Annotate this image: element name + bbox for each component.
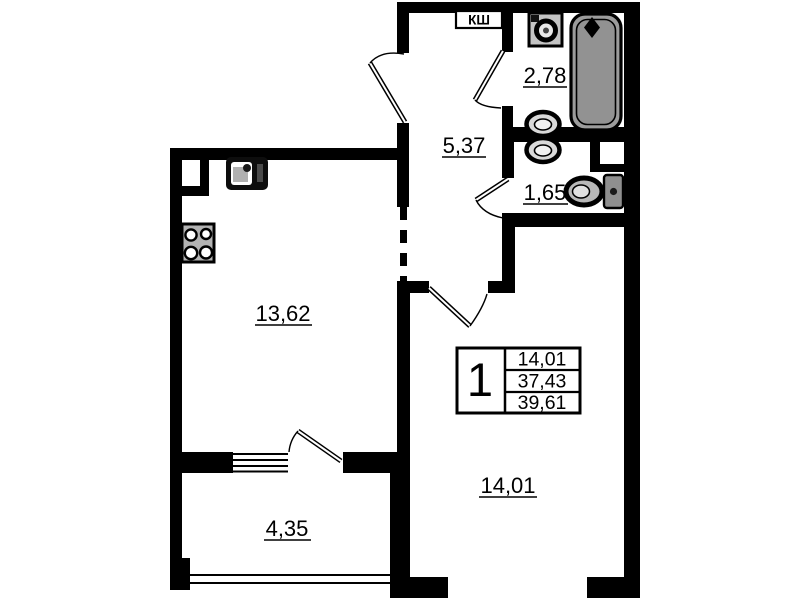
sink-icon [527, 138, 560, 162]
area-label-wc: 1,65 [524, 180, 567, 205]
wall-room-bottom-right [587, 577, 640, 598]
wall-wc-left [502, 142, 514, 178]
area-label-kitchen: 13,62 [255, 301, 310, 326]
stove-icon [182, 224, 214, 262]
wall-right-outer [624, 2, 640, 598]
wall-top-outer [397, 2, 640, 13]
window-glass [448, 592, 587, 596]
wall-bath-hall-top [502, 2, 513, 52]
unit-rooms-count: 1 [467, 353, 493, 406]
duct-shaft [590, 164, 624, 172]
wall-hall-left-mid [397, 123, 409, 207]
floor-plan-svg: КШ 2,78 5,37 1,65 13,62 14,01 4,35 1 14,… [0, 0, 799, 600]
room-window [448, 580, 587, 596]
wall-room-bottom-left [390, 577, 448, 598]
area-label-balcony: 4,35 [266, 516, 309, 541]
unit-info-table: 1 14,01 37,43 39,61 [457, 348, 580, 414]
wall-spine-lower [397, 281, 410, 598]
wall-hall-left-top [397, 2, 409, 53]
bathtub-icon [571, 14, 621, 130]
wall-left-outer [170, 148, 182, 588]
sink-icon [527, 112, 560, 136]
area-label-hallway: 5,37 [443, 133, 486, 158]
wall-kitchen-bottom-left [182, 452, 233, 473]
washing-machine-icon [529, 13, 562, 46]
floor-plan-canvas: КШ 2,78 5,37 1,65 13,62 14,01 4,35 1 14,… [0, 0, 799, 600]
wall-kitchen-bottom-right [343, 452, 398, 473]
area-label-bathroom: 2,78 [524, 63, 567, 88]
toilet-icon [566, 175, 623, 208]
duct-label: КШ [468, 13, 490, 28]
window-glass [448, 585, 587, 590]
unit-total-area: 39,61 [518, 392, 567, 414]
unit-living-area: 14,01 [518, 349, 567, 371]
kitchen-sink-icon [226, 157, 273, 190]
wall-room-top-left [397, 281, 429, 293]
duct-shaft [182, 186, 209, 196]
wall-balcony-right [390, 452, 398, 598]
duct-label-box: КШ [456, 11, 502, 28]
wall-wc-bottom [502, 213, 624, 227]
wall-kitchen-top [170, 148, 405, 160]
wall-balcony-left-stub [170, 558, 190, 590]
wall-hall-bottom-foot [488, 281, 515, 293]
window-glass [448, 580, 587, 584]
faucet-icon [243, 164, 251, 172]
unit-area: 37,43 [518, 371, 567, 393]
area-label-room: 14,01 [480, 473, 535, 498]
